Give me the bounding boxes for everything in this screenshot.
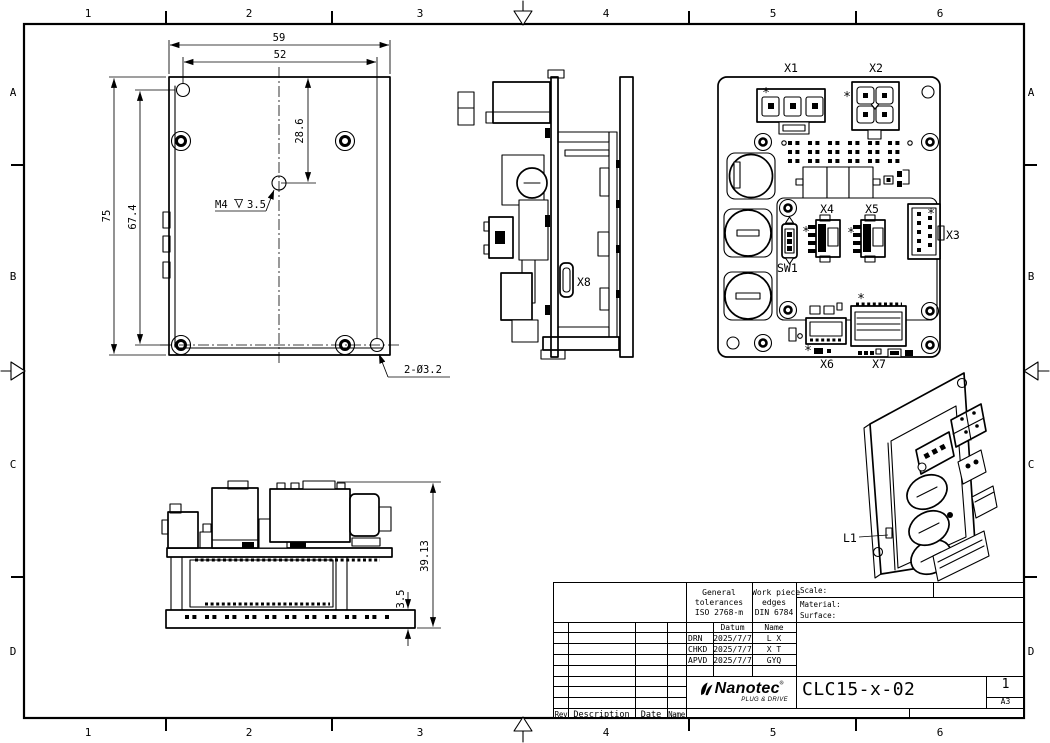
approval-row-drn: DRN (688, 634, 702, 643)
tolerances-line3: ISO 2768-m (686, 608, 752, 617)
surface-label: Surface: (800, 611, 836, 620)
switch-sw1: SW1 (777, 217, 798, 275)
switch-label-sw1: SW1 (777, 261, 798, 275)
grid-row-label: D (10, 645, 17, 658)
thread-callout: M4 3.5 (215, 190, 274, 211)
grid-col-label: 2 (246, 7, 253, 20)
pcb-edge (551, 77, 558, 357)
date-label: Date (635, 710, 667, 720)
grid-row-label: C (10, 458, 17, 471)
grid-row-label: D (1028, 645, 1035, 658)
dim-height-holes: 67.4 (127, 90, 175, 345)
connector-x3: * X3 (908, 204, 960, 259)
iso-view: L1 (843, 373, 997, 581)
pin1-marker: * (804, 344, 812, 359)
approval-drn-date: 2025/7/7 (713, 634, 752, 643)
pcb-bar (167, 548, 392, 557)
tolerances-line2: tolerances (686, 598, 752, 607)
grid-col-label: 4 (603, 7, 610, 20)
dim-plate-thickness: 3.5 (395, 590, 408, 646)
tolerances-line1: General (686, 588, 752, 597)
grid-col-label: 1 (85, 726, 92, 739)
profile-view: 39.13 3.5 (162, 481, 441, 646)
connector-label-x7: X7 (872, 357, 886, 371)
sheet-number: 1 (986, 677, 1025, 692)
pin1-marker: * (762, 86, 770, 101)
connector-x5: X5 * (847, 202, 885, 262)
connector-label-x8: X8 (577, 275, 591, 289)
brand-registered-mark: ® (780, 680, 784, 687)
via-array (782, 141, 912, 161)
rev-label: Rev (554, 710, 568, 719)
grid-col-label: 2 (246, 726, 253, 739)
centering-arrow-top (514, 1, 532, 25)
holes-callout: 2-Ø3.2 (379, 354, 450, 377)
material-label: Material: (800, 600, 841, 609)
nanotec-logo-icon (699, 682, 713, 696)
approval-col-name: Name (752, 623, 796, 632)
screw-holes (172, 132, 355, 355)
dim-text: 59 (273, 32, 286, 44)
front-view: 59 52 28.6 75 67.4 M4 3.5 (101, 32, 450, 377)
approval-col-datum: Datum (713, 623, 752, 632)
connector-label-x5: X5 (865, 202, 879, 216)
holes-callout-text: 2-Ø3.2 (404, 364, 442, 376)
brand-tagline: PLUG & DRIVE (686, 697, 796, 703)
thread-size: M4 (215, 199, 228, 211)
connector-x1: X1 * (757, 61, 825, 134)
grid-col-label: 3 (417, 726, 424, 739)
connector-x4: X4 * (802, 202, 840, 262)
connector-label-x6: X6 (820, 357, 834, 371)
dim-text: 28.6 (294, 118, 306, 143)
centering-arrow-right (1024, 362, 1049, 380)
grid-col-label: 1 (85, 7, 92, 20)
connector-x8: X8 (560, 263, 591, 297)
led-label-l1: L1 (843, 531, 857, 545)
centering-arrow-bottom (514, 717, 532, 742)
connector-label-x2: X2 (869, 61, 883, 75)
connector-label-x4: X4 (820, 202, 834, 216)
hole-3-2-top (177, 84, 190, 97)
grid-row-label: B (10, 270, 17, 283)
dim-text: 39.13 (419, 540, 431, 572)
grid-col-label: 6 (937, 726, 944, 739)
edges-line2: edges (752, 598, 796, 607)
part-number: CLC15-x-02 (802, 679, 915, 700)
centering-arrow-left (1, 362, 25, 380)
grid-col-label: 5 (770, 7, 777, 20)
base-plate (166, 610, 415, 628)
mounting-plate-edge (620, 77, 633, 357)
edges-line1: Work piece (752, 588, 796, 597)
grid-col-label: 5 (770, 726, 777, 739)
approval-chkd-date: 2025/7/7 (713, 645, 752, 654)
side-view: X8 (458, 70, 633, 359)
filter-blocks (796, 167, 909, 198)
connector-label-x1: X1 (784, 61, 798, 75)
led-callout: L1 (843, 528, 892, 545)
brand-name: Nanotec (715, 680, 780, 698)
grid-col-label: 4 (603, 726, 610, 739)
board-view: SW1 X4 * X5 * (718, 61, 960, 371)
dim-width-holes: 52 (183, 49, 377, 338)
pin1-marker: * (843, 90, 851, 105)
dim-text: 52 (274, 49, 287, 61)
scale-label: Scale: (800, 586, 827, 595)
connector-x2: X2 * (843, 61, 899, 139)
grid-col-label: 6 (937, 7, 944, 20)
approval-drn-name: L X (752, 634, 796, 643)
grid-row-label: B (1028, 270, 1035, 283)
approval-apvd-date: 2025/7/7 (713, 656, 752, 665)
approval-row-chkd: CHKD (688, 645, 707, 654)
edges-line3: DIN 6784 (752, 608, 796, 617)
depth-symbol-icon (234, 200, 243, 208)
name-label: Name (667, 710, 686, 719)
title-block: General tolerances ISO 2768-m Work piece… (553, 582, 1024, 718)
approval-apvd-name: GYQ (752, 656, 796, 665)
connector-x7: * X7 (851, 292, 913, 371)
brand-logo: Nanotec ® PLUG & DRIVE (686, 676, 796, 708)
connector-x6: * X6 (804, 303, 846, 371)
dim-text: 75 (101, 210, 113, 223)
connector-housing-top (493, 82, 550, 123)
description-label: Description (568, 710, 635, 720)
engineering-drawing-sheet: 1 2 3 4 5 6 1 2 3 4 5 6 A B C D A B C D (0, 0, 1050, 743)
dim-hole-offset: 28.6 (281, 79, 316, 184)
approval-row-apvd: APVD (688, 656, 707, 665)
dim-text: 67.4 (127, 204, 139, 229)
capacitors-top (724, 153, 775, 320)
grid-row-label: A (1028, 86, 1035, 99)
connector-label-x3: X3 (946, 228, 960, 242)
thread-depth: 3.5 (247, 199, 266, 211)
paper-format: A3 (986, 697, 1025, 706)
pin1-marker: * (927, 207, 935, 222)
dim-text: 3.5 (395, 590, 407, 609)
approval-chkd-name: X T (752, 645, 796, 654)
grid-col-label: 3 (417, 7, 424, 20)
grid-row-label: A (10, 86, 17, 99)
grid-row-label: C (1028, 458, 1035, 471)
